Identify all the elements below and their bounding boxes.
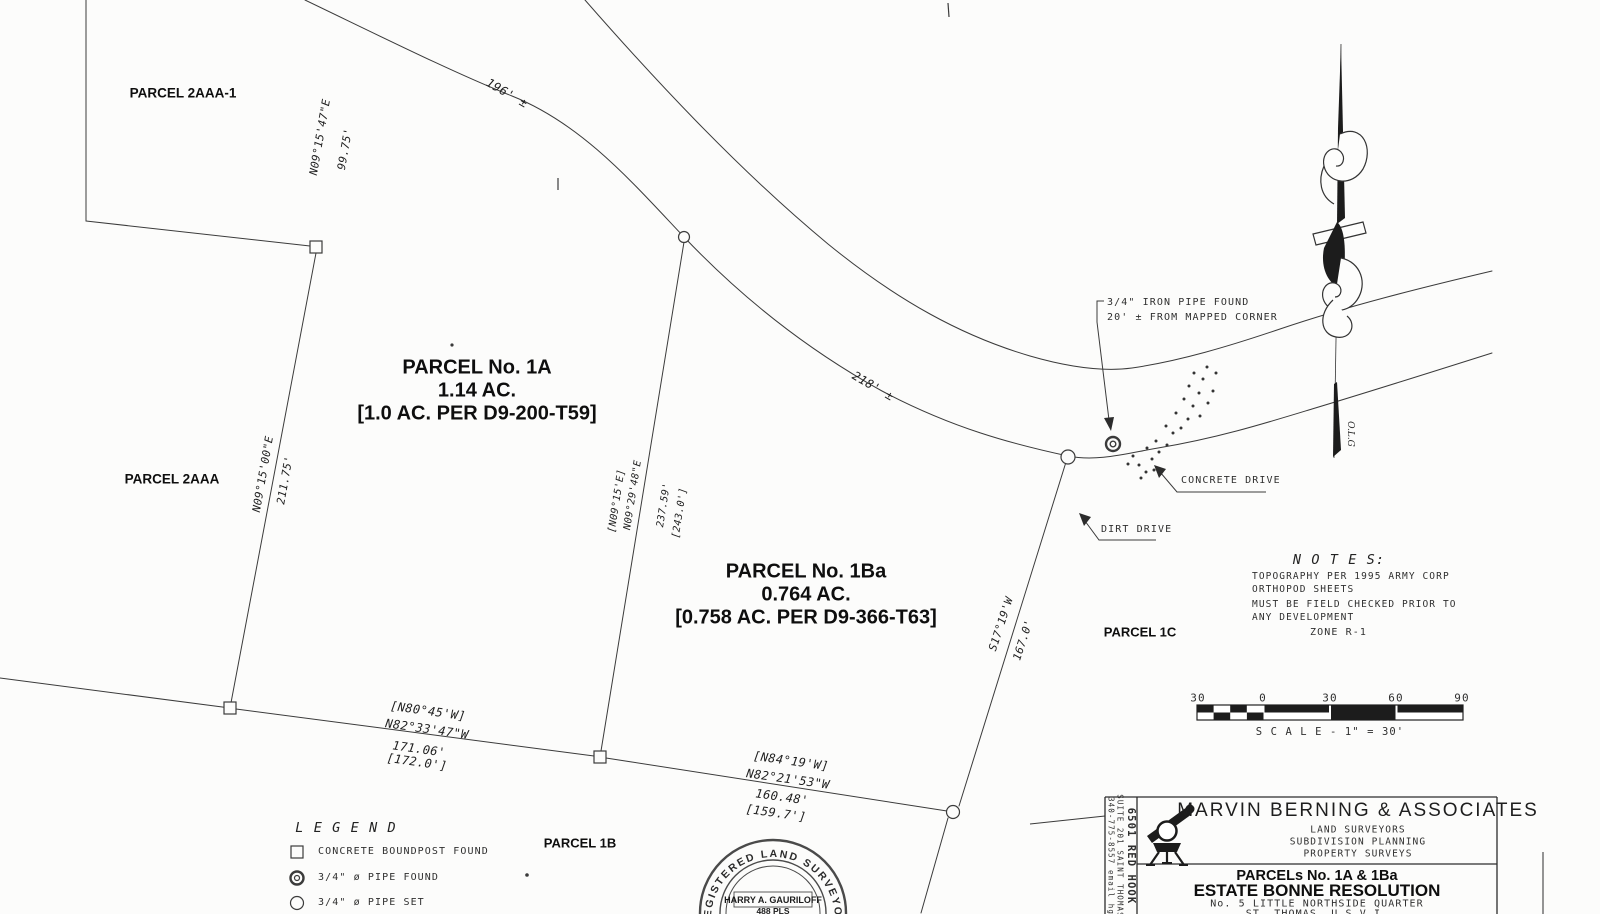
parcel-1c-label: PARCEL 1C	[1104, 625, 1176, 640]
notes-line3: MUST BE FIELD CHECKED PRIOR TO	[1252, 598, 1457, 611]
seal-arc-text: REGISTERED LAND SURVEYOR	[0, 0, 844, 914]
scale-caption: S C A L E - 1" = 30'	[1256, 726, 1404, 738]
parcel-2aaa-label: PARCEL 2AAA	[125, 472, 220, 487]
pipe-set-marker	[947, 806, 960, 819]
boundpost-marker	[224, 702, 236, 714]
scale-tick-label: 60	[1388, 692, 1403, 705]
north-arrow-icon	[1313, 44, 1367, 458]
survey-plat-sheet: REGISTERED LAND SURVEYOR HARRY A. GAURIL…	[0, 0, 1600, 914]
parcel-1ba-label: PARCEL No. 1Ba 0.764 AC. [0.758 AC. PER …	[675, 561, 937, 630]
boundpost-marker	[310, 241, 322, 253]
parcel-1a-name: PARCEL No. 1A	[357, 357, 596, 380]
legend-square-icon	[291, 846, 303, 858]
firm-service-3: PROPERTY SURVEYS	[1303, 849, 1412, 860]
scale-tick-label: 30	[1190, 692, 1205, 705]
scale-bar	[1197, 705, 1463, 720]
topo-dots	[1127, 366, 1218, 480]
notes-title: N O T E S:	[1293, 552, 1385, 568]
arrowhead	[1104, 417, 1114, 431]
iron-pipe-callout-line1: 3/4" IRON PIPE FOUND	[1107, 295, 1278, 310]
stray-line	[1030, 816, 1105, 824]
scale-tick-label: 90	[1454, 692, 1469, 705]
iron-pipe-callout-line2: 20' ± FROM MAPPED CORNER	[1107, 310, 1278, 325]
legend-item-pipe-set: 3/4" ø PIPE SET	[318, 897, 425, 908]
parcel-2aaa1-label: PARCEL 2AAA-1	[130, 86, 237, 101]
notes-line2: ORTHOPOD SHEETS	[1252, 583, 1450, 596]
firm-address-line2: SUITE 201 SAINT THOMAS	[1116, 794, 1125, 914]
notes-zone: ZONE R-1	[1310, 627, 1367, 638]
legend-circle-icon	[291, 897, 304, 910]
concrete-drive-label: CONCRETE DRIVE	[1181, 475, 1281, 486]
pipe-set-marker	[679, 232, 690, 243]
legend-title: L E G E N D	[295, 820, 397, 836]
pipe-found-marker	[1110, 441, 1116, 447]
leader-lines	[1030, 301, 1266, 824]
surveyor-seal: REGISTERED LAND SURVEYOR HARRY A. GAURIL…	[0, 0, 846, 914]
parcel-1a-label: PARCEL No. 1A 1.14 AC. [1.0 AC. PER D9-2…	[357, 357, 596, 426]
legend-double-circle-icon	[295, 876, 300, 881]
parcel-1ba-area: 0.764 AC.	[675, 584, 937, 607]
project-island-line: ST. THOMAS, U.S.V.I.	[1246, 909, 1388, 914]
arrowhead	[1154, 465, 1166, 478]
tick-marks	[450, 3, 949, 877]
parcel-1ba-name: PARCEL No. 1Ba	[675, 561, 937, 584]
firm-service-1: LAND SURVEYORS	[1310, 825, 1405, 836]
iron-pipe-callout: 3/4" IRON PIPE FOUND 20' ± FROM MAPPED C…	[1107, 295, 1278, 325]
pipe-set-marker	[1061, 450, 1075, 464]
legend-double-circle-icon	[291, 872, 304, 885]
legend-item-boundpost: CONCRETE BOUNDPOST FOUND	[318, 846, 489, 857]
notes-block-2: MUST BE FIELD CHECKED PRIOR TO ANY DEVEL…	[1252, 598, 1457, 624]
parcel-1ba-prior-area: [0.758 AC. PER D9-366-T63]	[675, 607, 937, 630]
seal-license: 488 PLS	[756, 906, 789, 914]
scale-tick-label: 30	[1322, 692, 1337, 705]
seal-name: HARRY A. GAURILOFF	[724, 895, 822, 905]
firm-address-line3: 340-775-8557 email hg	[1107, 797, 1116, 914]
dirt-drive-label: DIRT DRIVE	[1101, 524, 1172, 535]
legend-symbols	[291, 846, 304, 910]
parcel-boundaries	[0, 0, 1066, 913]
firm-name: MARVIN BERNING & ASSOCIATES	[1177, 800, 1539, 822]
firm-address-line1: 6501 RED HOOK	[1125, 808, 1137, 904]
scale-tick-label: 0	[1259, 692, 1267, 705]
legend-item-pipe-found: 3/4" ø PIPE FOUND	[318, 872, 439, 883]
north-arrow-olg-label: O.L.G	[1345, 421, 1355, 447]
parcel-1b-label: PARCEL 1B	[544, 836, 616, 851]
notes-block-1: TOPOGRAPHY PER 1995 ARMY CORP ORTHOPOD S…	[1252, 570, 1450, 596]
parcel-1a-prior-area: [1.0 AC. PER D9-200-T59]	[357, 403, 596, 426]
firm-service-2: SUBDIVISION PLANNING	[1290, 837, 1426, 848]
notes-line1: TOPOGRAPHY PER 1995 ARMY CORP	[1252, 570, 1450, 583]
parcel-1a-area: 1.14 AC.	[357, 380, 596, 403]
boundpost-marker	[594, 751, 606, 763]
notes-line4: ANY DEVELOPMENT	[1252, 611, 1457, 624]
arrowhead	[1079, 513, 1091, 526]
